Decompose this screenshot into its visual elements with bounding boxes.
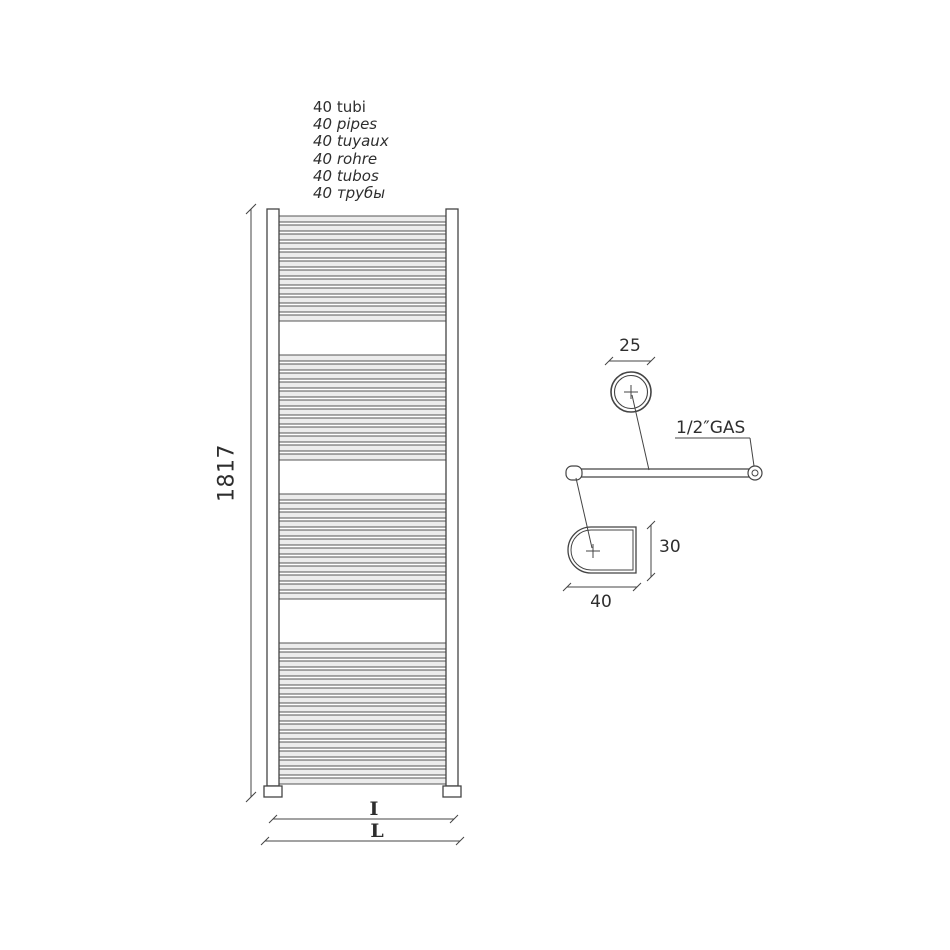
radiator-tube	[279, 733, 446, 739]
radiator-tube	[279, 679, 446, 685]
tube-group-3	[279, 494, 446, 599]
front-view	[264, 209, 461, 797]
radiator-tube	[279, 315, 446, 321]
radiator-tube	[279, 427, 446, 433]
radiator-tube	[279, 445, 446, 451]
radiator-tube	[279, 400, 446, 406]
radiator-tube	[279, 261, 446, 267]
radiator-tube	[279, 306, 446, 312]
radiator-tube	[279, 391, 446, 397]
radiator-tube	[279, 584, 446, 590]
radiator-tube	[279, 494, 446, 500]
radiator-tube	[279, 643, 446, 649]
radiator-tube	[279, 661, 446, 667]
collector-depth-dimension-line	[647, 521, 655, 581]
radiator-tube	[279, 454, 446, 460]
radiator-tube	[279, 409, 446, 415]
tube-left-cap	[566, 466, 582, 480]
radiator-tube	[279, 436, 446, 442]
radiator-tube	[279, 234, 446, 240]
tube-diameter-dimension-line	[605, 357, 655, 365]
tube-count-label-en: 40 pipes	[313, 116, 389, 133]
radiator-tube	[279, 279, 446, 285]
radiator-tube	[279, 566, 446, 572]
tube-side-view	[566, 466, 762, 480]
right-collector	[446, 209, 458, 786]
radiator-tube	[279, 225, 446, 231]
radiator-tube	[279, 503, 446, 509]
tube-group-2	[279, 355, 446, 460]
tube-group-1	[279, 216, 446, 321]
radiator-tube	[279, 243, 446, 249]
collector-width-value: 40	[590, 592, 612, 612]
radiator-tube	[279, 706, 446, 712]
radiator-tube	[279, 652, 446, 658]
tube-count-label-it: 40 tubi	[313, 99, 389, 116]
radiator-tube	[279, 557, 446, 563]
tube-diameter-value: 25	[619, 336, 641, 356]
gas-connection-fitting	[748, 466, 762, 480]
radiator-tube	[279, 593, 446, 599]
radiator-tube	[279, 252, 446, 258]
tube-group-4	[279, 643, 446, 784]
radiator-tube	[279, 530, 446, 536]
radiator-tube	[279, 769, 446, 775]
overall-width-dimension-line	[261, 837, 464, 845]
height-dimension-value: 1817	[215, 444, 240, 502]
radiator-tube	[279, 548, 446, 554]
tube-count-label-ru: 40 трубы	[313, 185, 389, 202]
collector-depth-value: 30	[659, 537, 681, 557]
radiator-tube	[279, 724, 446, 730]
radiator-tube	[279, 382, 446, 388]
radiator-tube	[279, 751, 446, 757]
radiator-tube	[279, 373, 446, 379]
left-collector	[267, 209, 279, 786]
collector-section-outline	[568, 527, 636, 573]
radiator-tube	[279, 575, 446, 581]
radiator-tube	[279, 539, 446, 545]
right-bottom-cap	[443, 786, 461, 797]
height-dimension-line	[246, 204, 256, 802]
radiator-tube	[279, 521, 446, 527]
tube-count-label-de: 40 rohre	[313, 151, 389, 168]
overall-width-dimension-label: L	[370, 823, 383, 840]
tube-count-label-fr: 40 tuyaux	[313, 133, 389, 150]
radiator-tube	[279, 270, 446, 276]
radiator-tube	[279, 760, 446, 766]
collector-width-dimension-line	[563, 583, 641, 591]
radiator-tube	[279, 216, 446, 222]
inner-width-dimension-line	[269, 815, 458, 823]
tube-count-title-block: 40 tubi 40 pipes 40 tuyaux 40 rohre 40 t…	[313, 99, 389, 202]
inner-width-dimension-label: I	[370, 801, 379, 818]
technical-drawing-page: 40 tubi 40 pipes 40 tuyaux 40 rohre 40 t…	[0, 0, 950, 950]
left-bottom-cap	[264, 786, 282, 797]
radiator-tube	[279, 512, 446, 518]
radiator-tube	[279, 688, 446, 694]
radiator-tube	[279, 364, 446, 370]
radiator-tube	[279, 297, 446, 303]
radiator-tube	[279, 778, 446, 784]
radiator-line-drawing	[0, 0, 950, 950]
radiator-tube	[279, 418, 446, 424]
radiator-tube	[279, 670, 446, 676]
gas-connection-label: 1/2″GAS	[676, 418, 745, 438]
radiator-tube	[279, 697, 446, 703]
tube-count-label-es: 40 tubos	[313, 168, 389, 185]
radiator-tube	[279, 715, 446, 721]
radiator-tube	[279, 355, 446, 361]
gas-leader-line	[675, 438, 754, 466]
radiator-tube	[279, 742, 446, 748]
radiator-tube	[279, 288, 446, 294]
